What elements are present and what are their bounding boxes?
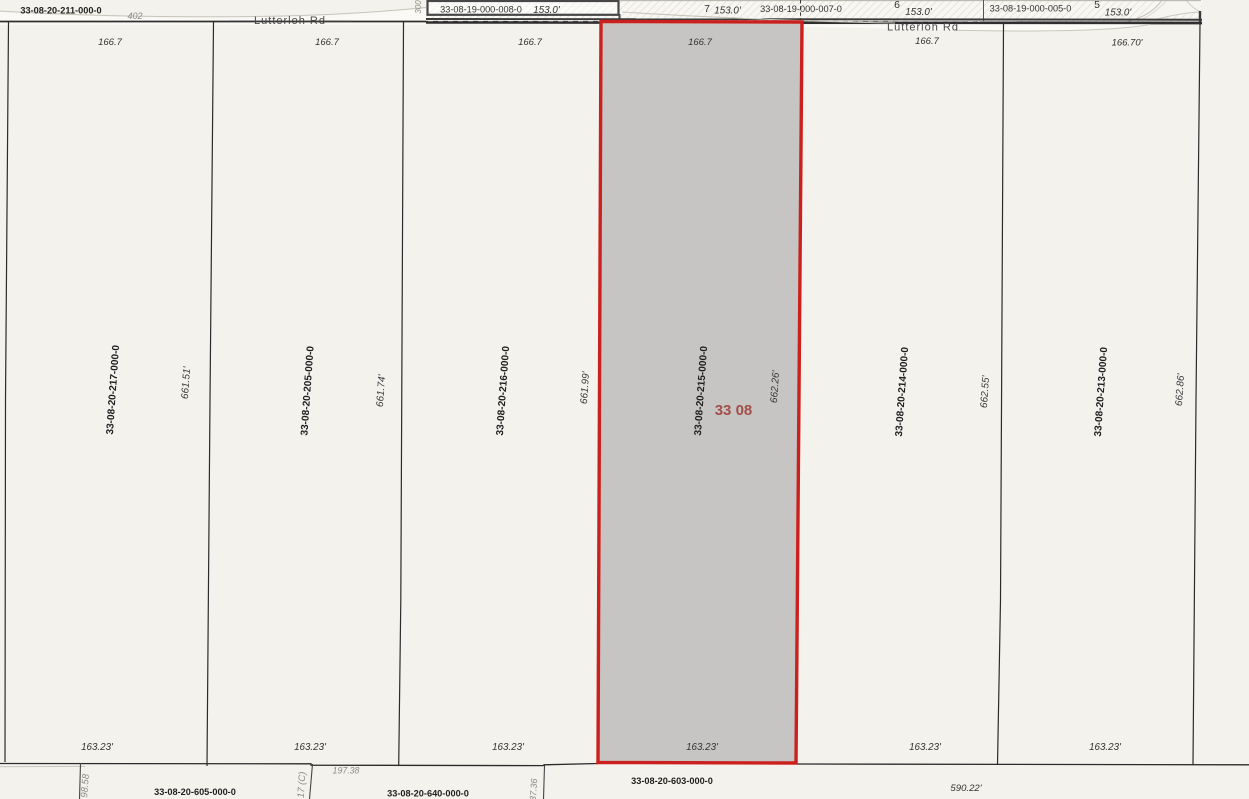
svg-text:166.7: 166.7 — [915, 36, 939, 47]
svg-text:163.23': 163.23' — [686, 742, 719, 753]
svg-text:590.22': 590.22' — [950, 783, 982, 794]
svg-text:153.0': 153.0' — [905, 7, 933, 18]
svg-text:662.26': 662.26' — [769, 369, 782, 403]
svg-text:163.23': 163.23' — [1089, 742, 1122, 753]
svg-text:661.51': 661.51' — [180, 365, 193, 399]
svg-text:5: 5 — [1094, 0, 1100, 11]
svg-text:33-08-20-605-000-0: 33-08-20-605-000-0 — [154, 787, 236, 797]
svg-text:661.99': 661.99' — [579, 370, 592, 404]
svg-text:7: 7 — [704, 3, 710, 15]
svg-text:402: 402 — [127, 11, 142, 21]
svg-text:98.58: 98.58 — [79, 773, 92, 798]
svg-text:6: 6 — [894, 0, 900, 11]
svg-text:166.7: 166.7 — [98, 37, 122, 48]
svg-text:163.23': 163.23' — [294, 742, 327, 753]
svg-text:33-08-19-000-008-0: 33-08-19-000-008-0 — [440, 4, 522, 14]
svg-text:17 (C): 17 (C) — [296, 771, 309, 798]
svg-text:662.55': 662.55' — [979, 374, 992, 408]
svg-text:33-08-20-640-000-0: 33-08-20-640-000-0 — [387, 789, 469, 799]
svg-text:33 08: 33 08 — [715, 402, 753, 419]
svg-text:166.7: 166.7 — [315, 37, 339, 48]
svg-text:166.70': 166.70' — [1112, 38, 1144, 49]
svg-text:37.36: 37.36 — [528, 778, 540, 799]
svg-text:300: 300 — [414, 0, 423, 14]
svg-text:33-08-20-603-000-0: 33-08-20-603-000-0 — [631, 776, 713, 786]
svg-text:163.23': 163.23' — [81, 742, 114, 753]
svg-text:662.86': 662.86' — [1174, 372, 1187, 406]
svg-text:163.23': 163.23' — [492, 742, 525, 753]
svg-text:163.23': 163.23' — [909, 742, 942, 753]
svg-text:197.38: 197.38 — [333, 766, 360, 776]
svg-text:661.74': 661.74' — [375, 373, 388, 407]
svg-text:33-08-19-000-005-0: 33-08-19-000-005-0 — [990, 4, 1072, 14]
svg-text:33-08-19-000-007-0: 33-08-19-000-007-0 — [760, 4, 842, 14]
svg-text:153.0': 153.0' — [714, 6, 742, 17]
svg-text:166.7: 166.7 — [688, 37, 712, 48]
svg-text:Lutterloh Rd: Lutterloh Rd — [887, 22, 959, 34]
svg-text:153.0': 153.0' — [533, 5, 561, 16]
svg-text:33-08-20-211-000-0: 33-08-20-211-000-0 — [20, 6, 101, 16]
svg-text:153.0': 153.0' — [1105, 8, 1133, 19]
svg-text:166.7: 166.7 — [518, 37, 542, 48]
